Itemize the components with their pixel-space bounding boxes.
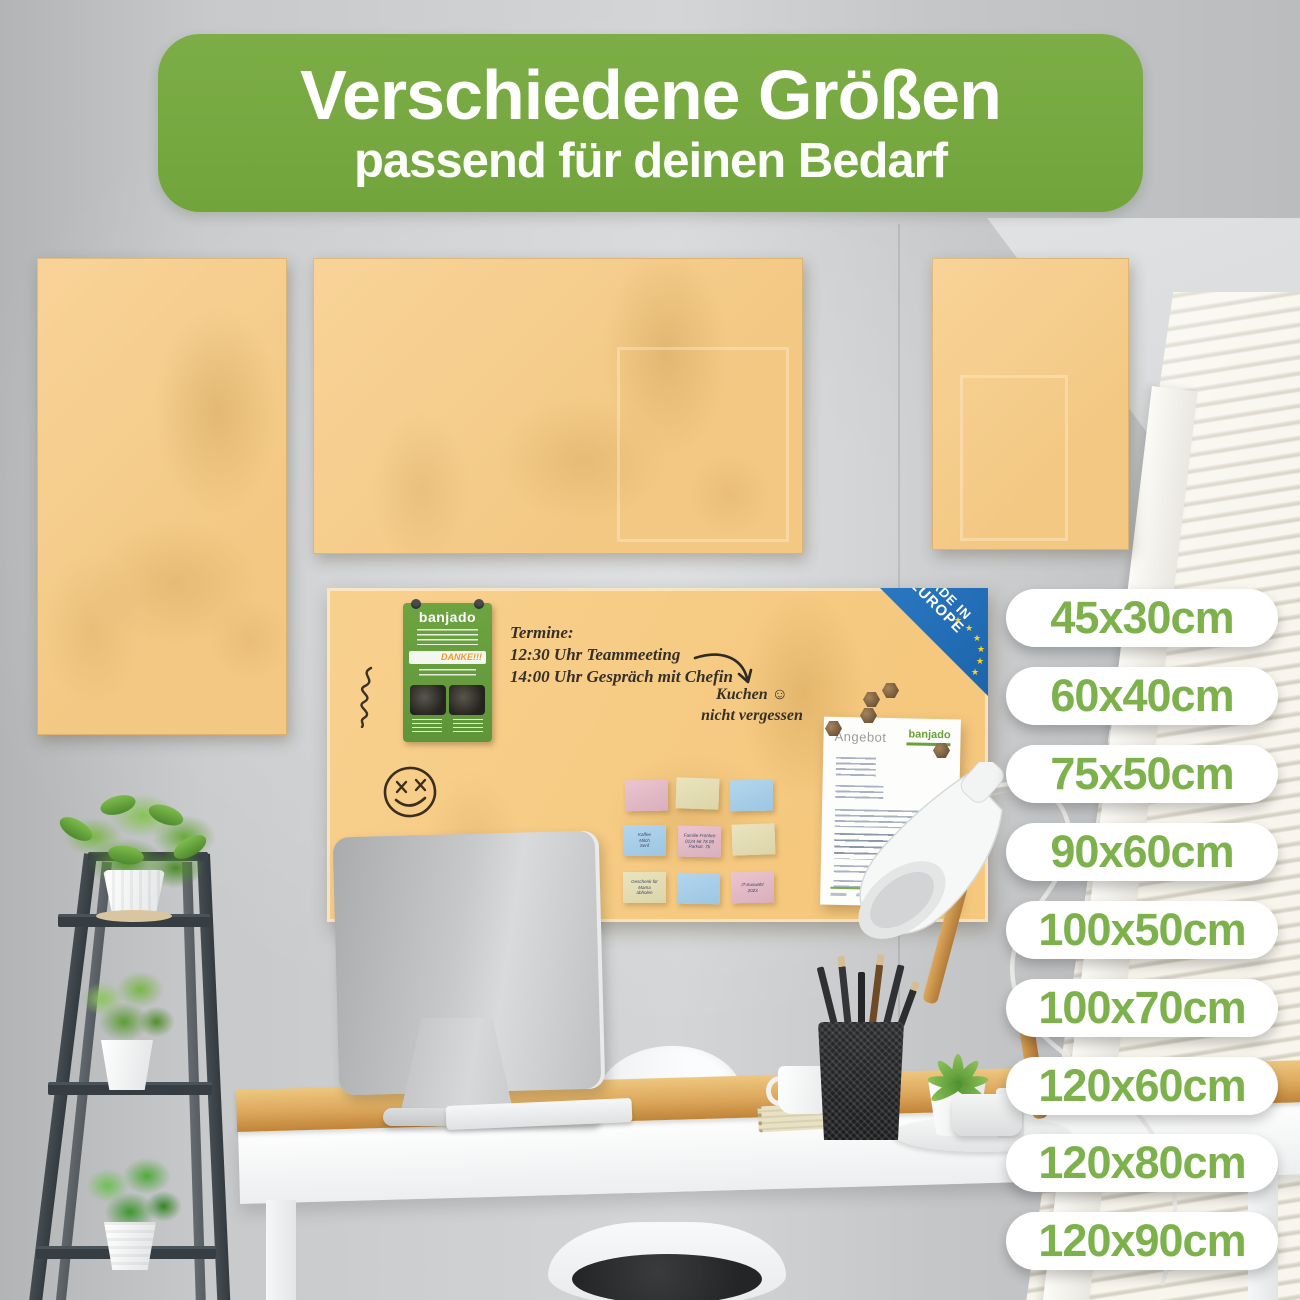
eu-star-icon: ★ [965,624,973,633]
note-text: Senf [640,843,649,849]
tag-fine-print [419,669,476,679]
plant-pot [101,1040,153,1090]
tag-fine-print [417,629,478,645]
size-pill: 120x80cm [1006,1134,1278,1192]
eu-star-icon: ★ [977,645,985,654]
picture-frame-reflection [960,375,1068,542]
note-text: Parkstr. 7b [689,844,711,850]
handwritten-reminder: Kuchen ☺ nicht vergessen [689,684,815,726]
tag-fine-print [412,719,442,735]
size-pill: 120x60cm [1006,1057,1278,1115]
size-label: 45x30cm [1050,592,1233,644]
smiley-doodle-icon [379,764,443,820]
succulent-plant [922,1024,992,1100]
size-pill: 100x70cm [1006,979,1278,1037]
size-pill: 60x40cm [1006,667,1278,725]
reminder-line: nicht vergessen [689,705,815,726]
size-label: 120x90cm [1038,1215,1245,1267]
glass-board-landscape-top [313,258,803,554]
sticky-note [625,780,669,812]
sticky-note: Geschenk für Mama abholen [623,872,666,903]
sticky-note [677,873,721,905]
tag-brand-logo: banjado [403,609,492,625]
eu-star-icon: ★ [971,668,979,677]
squiggle-doodle-icon [355,666,381,728]
magnet-pin-icon [411,599,421,609]
sticky-note: Kaffee Milch Senf [623,825,666,856]
glass-board-portrait-right [932,258,1129,550]
tag-thanks-label: DANKE!!! [409,651,486,664]
sticky-note [731,823,775,855]
header-banner: Verschiedene Größen passend für deinen B… [158,34,1143,212]
banner-title: Verschiedene Größen [300,57,1001,133]
size-pill: 120x90cm [1006,1212,1278,1270]
note-text: abholen [636,890,652,896]
size-label: 100x50cm [1038,904,1245,956]
plant-reflection [37,258,287,735]
plant-pot [104,1222,156,1270]
lamp-head [818,762,1018,952]
size-pill: 90x60cm [1006,823,1278,881]
glass-board-portrait-left [37,258,287,735]
size-label: 60x40cm [1050,670,1233,722]
offer-title: Angebot [834,729,886,745]
size-pill: 75x50cm [1006,745,1278,803]
eu-star-icon: ★ [976,657,984,666]
dog-photo [410,685,446,715]
sticky-note: Familie Fröhlich 0124 56 78 09 Parkstr. … [678,826,722,858]
sticky-note: IT-Auswahl 2023 [731,872,775,904]
pot-saucer [96,910,172,922]
sticky-note [675,777,719,809]
magnet-pin-icon [474,599,484,609]
mesh-pen-holder [818,1022,904,1140]
desk-leg [266,1200,296,1300]
smiley-glyph-icon: ☺ [772,686,788,703]
size-label: 120x80cm [1038,1137,1245,1189]
note-text: 2023 [747,887,757,893]
size-label: 100x70cm [1038,982,1245,1034]
size-label: 90x60cm [1050,826,1233,878]
size-label: 75x50cm [1050,748,1233,800]
chair-cushion [572,1254,762,1300]
tag-fine-print [453,719,483,735]
reminder-word: Kuchen [716,686,768,703]
picture-frame-reflection [617,347,790,542]
product-room-scene: Termine: 12:30 Uhr Teammeeting 14:00 Uhr… [0,0,1300,1300]
banjado-hang-tag: banjado DANKE!!! [403,603,492,742]
eu-star-icon: ★ [973,634,981,643]
size-pill: 45x30cm [1006,589,1278,647]
schedule-title: Termine: [510,622,760,644]
sticky-note [730,780,774,812]
banner-subtitle: passend für deinen Bedarf [354,133,947,189]
size-pill: 100x50cm [1006,901,1278,959]
size-label: 120x60cm [1038,1060,1245,1112]
dog-photo [449,685,485,715]
eu-star-icon: ★ [954,616,962,625]
